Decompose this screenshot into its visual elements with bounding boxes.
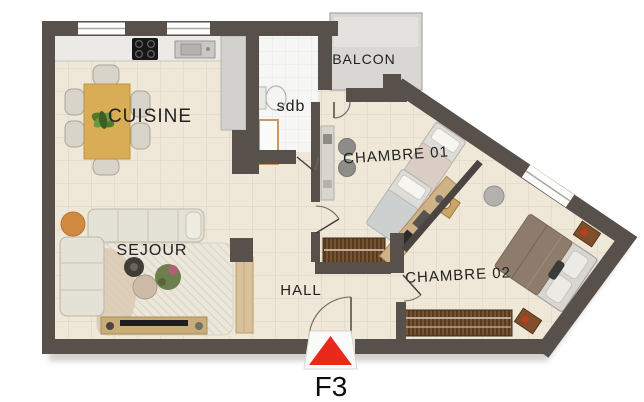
wall-cuisine-sdb [246, 28, 259, 132]
side-counter [221, 36, 246, 130]
wall-hall-chambre02-top [390, 233, 404, 273]
balcony-inner [334, 17, 418, 47]
wall-sdb-hall [246, 150, 296, 164]
floor-plan-canvas: BALCON sdb [0, 0, 644, 402]
wall-under-balcony [346, 88, 407, 102]
wall-bottom-right [355, 339, 547, 354]
floor-plan: BALCON sdb [0, 0, 644, 402]
wardrobe-chambre02 [400, 310, 512, 336]
entrance-marker-label: F3 [315, 371, 348, 402]
wall-hall-chambre01 [315, 262, 391, 274]
cooktop [132, 38, 158, 60]
kitchen-sink [175, 41, 215, 58]
wall-hall-chambre02-bottom [396, 302, 406, 339]
wall-sdb-balcon [318, 23, 332, 90]
entrance-marker: F3 [304, 331, 357, 402]
side-table [61, 212, 85, 236]
room-balcon: BALCON [330, 13, 422, 90]
hall-label: HALL [280, 282, 322, 299]
coffee-table-light [133, 275, 157, 299]
sdb-label: sdb [277, 98, 306, 115]
tv-console [101, 317, 207, 334]
wall-sejour-hall [230, 238, 253, 262]
stool [484, 186, 504, 206]
floor-plant [155, 264, 181, 290]
window [78, 23, 125, 35]
wall-balcony-stub [383, 74, 401, 88]
cuisine-label: CUISINE [108, 106, 192, 127]
wall-bottom-left [42, 339, 308, 354]
room-sdb: sdb [257, 28, 318, 164]
wall-chambre01-west [311, 102, 320, 202]
balcon-label: BALCON [332, 51, 396, 67]
window [167, 23, 210, 35]
wall-left [42, 21, 55, 354]
wardrobe-chambre01 [323, 238, 385, 263]
sejour-label: SEJOUR [117, 242, 188, 259]
wall-chambre01-west-stub [311, 232, 320, 262]
